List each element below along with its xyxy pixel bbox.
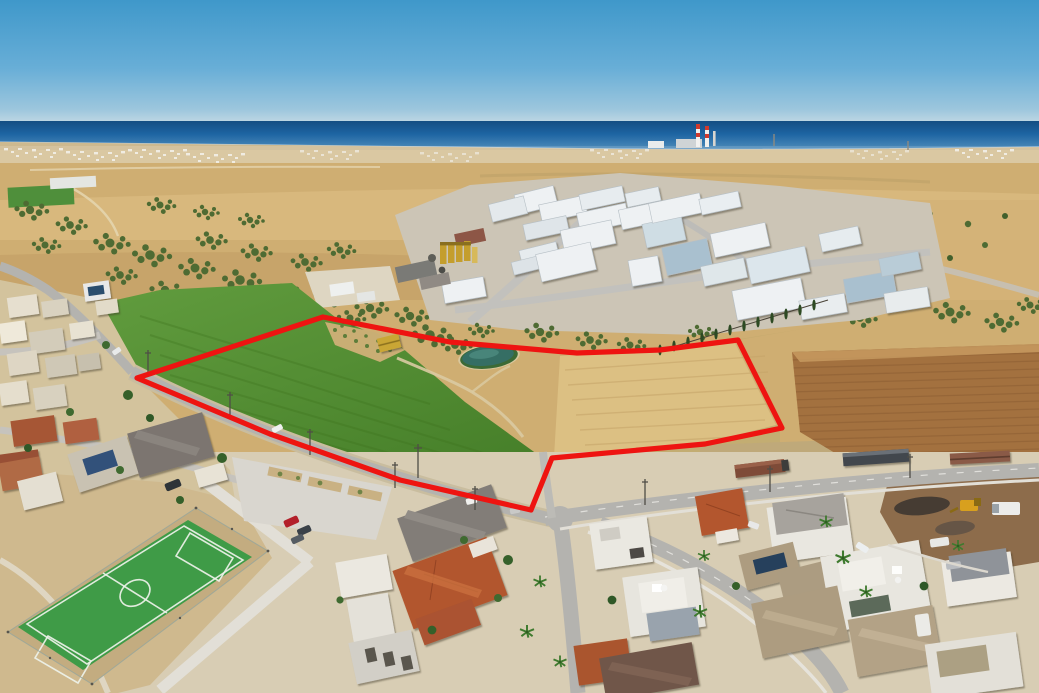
white-truck (992, 502, 1020, 515)
aerial-photo (0, 0, 1039, 693)
dirt-track-2 (472, 366, 510, 392)
white-modern-house-2 (622, 567, 706, 641)
industrial-estate (395, 173, 950, 335)
sky (0, 0, 1039, 124)
house-east-edge (941, 548, 1017, 607)
aerial-photo-canvas (0, 0, 1039, 693)
white-modern-house-east (589, 516, 653, 570)
